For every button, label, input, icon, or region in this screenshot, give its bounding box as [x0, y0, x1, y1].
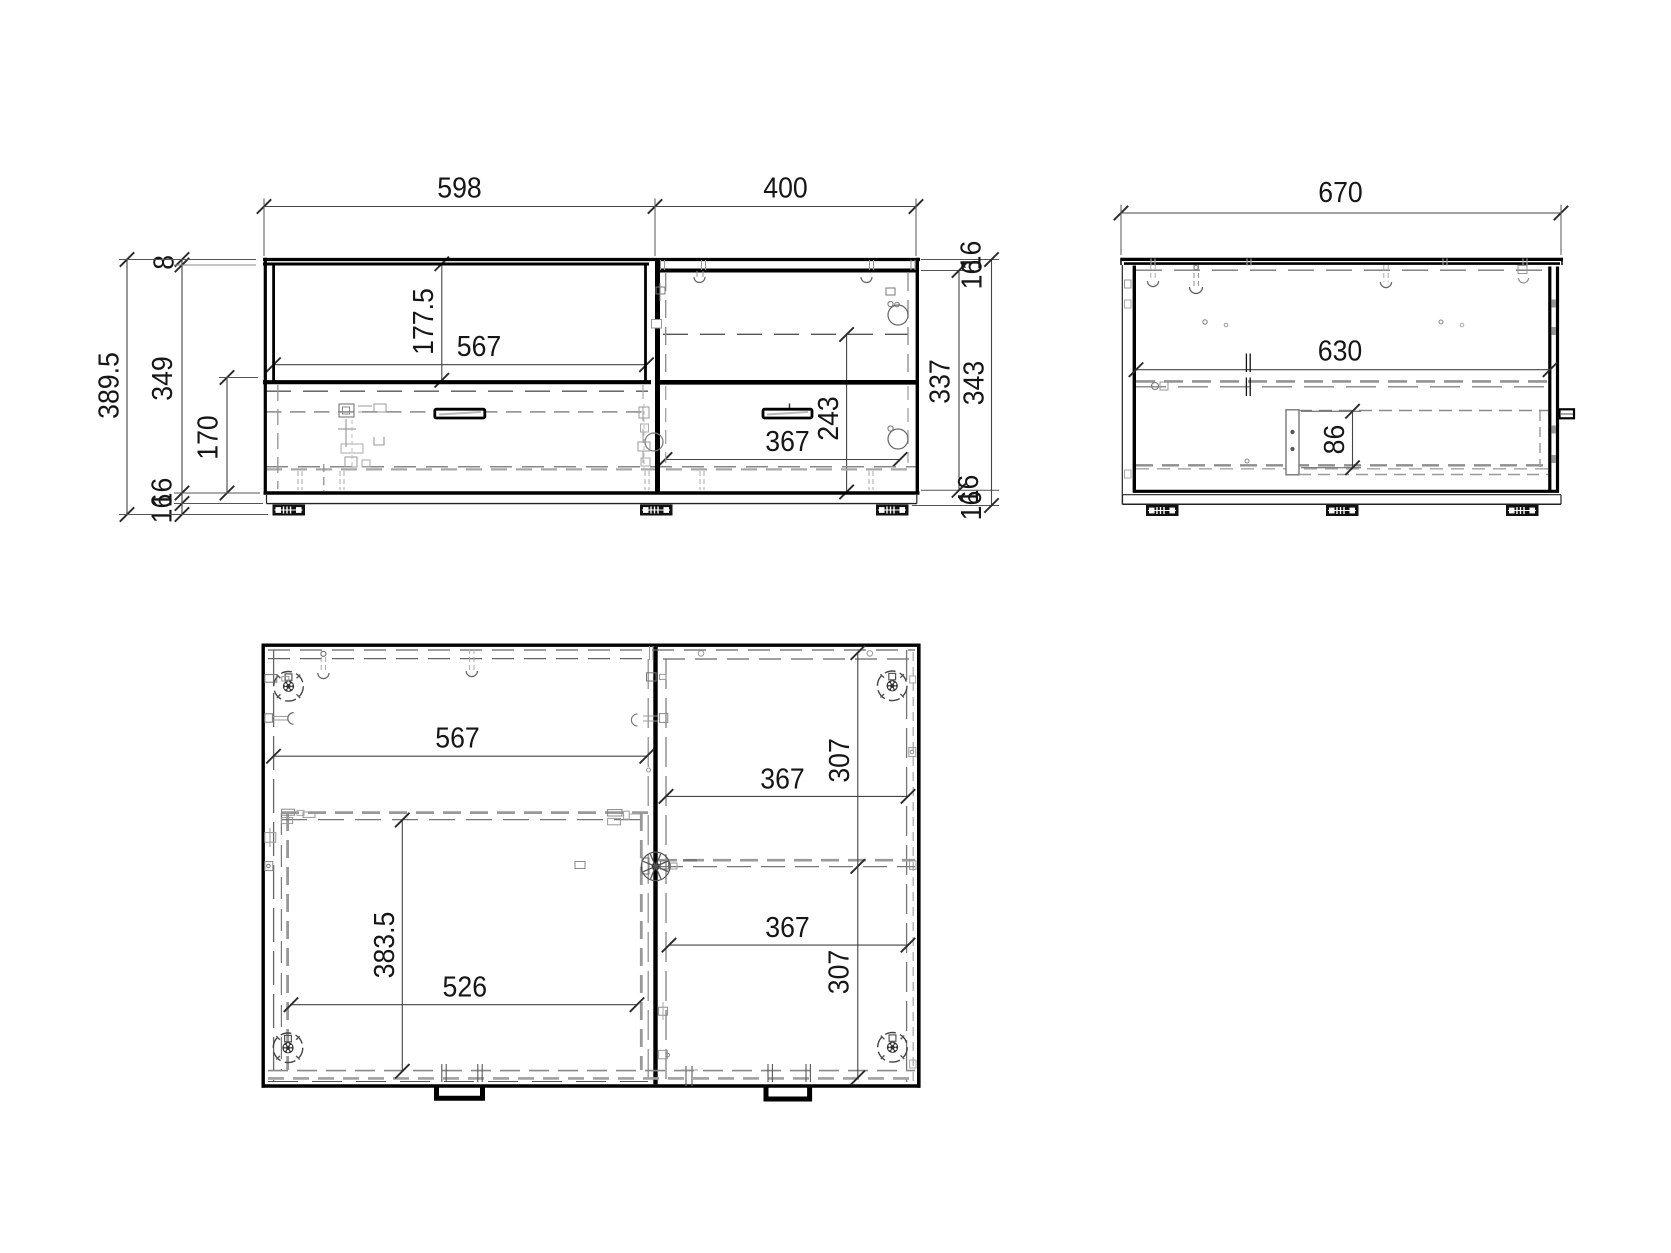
svg-text:367: 367 [765, 912, 810, 944]
svg-text:367: 367 [765, 426, 810, 458]
svg-text:567: 567 [435, 723, 480, 755]
svg-text:567: 567 [457, 331, 502, 363]
svg-text:243: 243 [813, 396, 845, 441]
svg-text:170: 170 [193, 415, 225, 460]
svg-text:349: 349 [147, 356, 179, 401]
svg-text:383.5: 383.5 [369, 912, 401, 979]
svg-text:16: 16 [956, 491, 988, 521]
svg-text:16: 16 [957, 260, 989, 290]
svg-text:177.5: 177.5 [408, 288, 440, 355]
svg-text:343: 343 [959, 361, 991, 406]
svg-text:337: 337 [925, 359, 957, 404]
svg-text:8: 8 [149, 255, 181, 270]
svg-text:16: 16 [147, 494, 179, 524]
svg-text:598: 598 [437, 173, 482, 205]
svg-text:307: 307 [824, 950, 856, 995]
svg-text:400: 400 [763, 173, 808, 205]
svg-text:307: 307 [824, 738, 856, 783]
svg-text:526: 526 [443, 971, 488, 1003]
svg-text:389.5: 389.5 [94, 352, 126, 419]
svg-text:86: 86 [1319, 425, 1351, 455]
svg-text:630: 630 [1318, 336, 1363, 368]
svg-text:367: 367 [760, 764, 805, 796]
svg-text:670: 670 [1318, 177, 1363, 209]
